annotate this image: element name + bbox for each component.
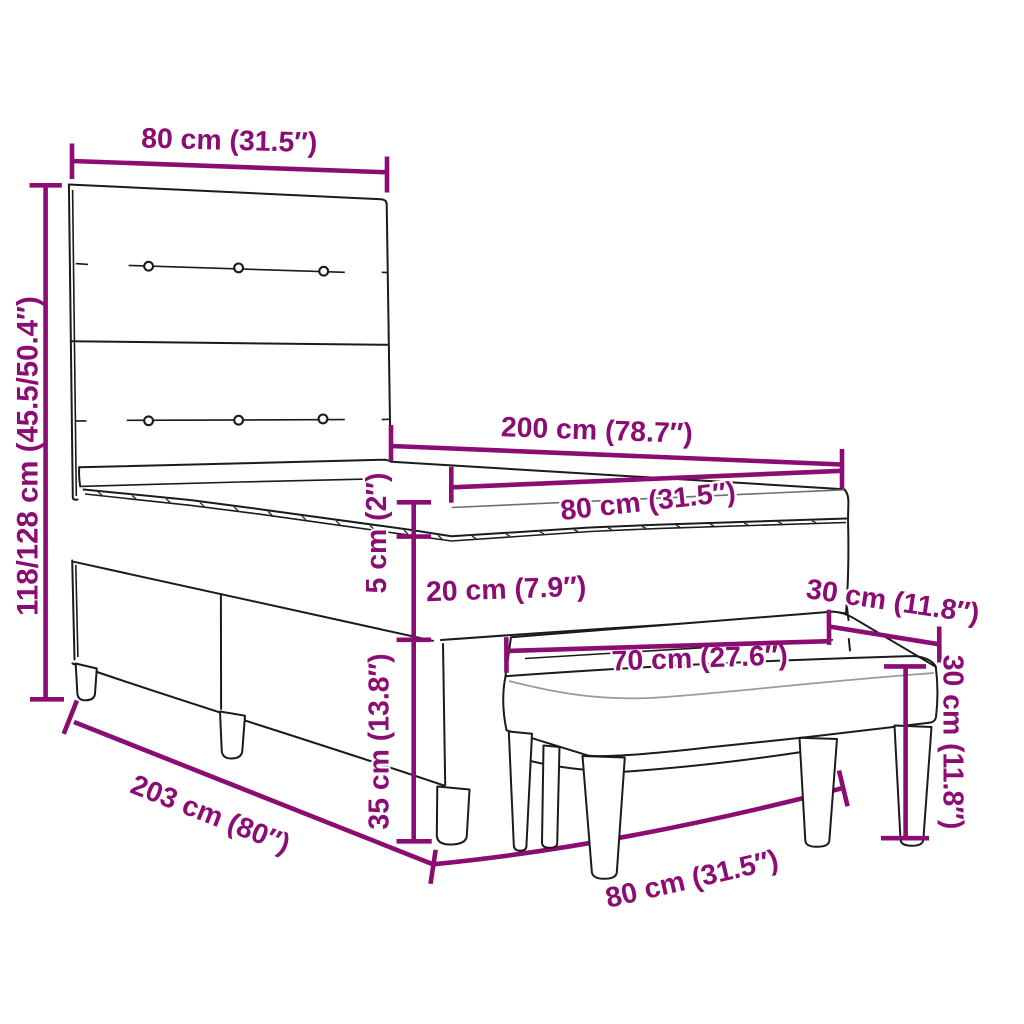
- svg-text:80 cm (31.5″): 80 cm (31.5″): [141, 123, 318, 160]
- svg-text:200 cm (78.7″): 200 cm (78.7″): [500, 411, 693, 450]
- svg-text:30 cm (11.8″): 30 cm (11.8″): [937, 655, 969, 830]
- svg-text:35 cm (13.8″): 35 cm (13.8″): [364, 653, 396, 829]
- svg-text:5 cm (2″): 5 cm (2″): [361, 473, 393, 594]
- svg-text:20 cm (7.9″): 20 cm (7.9″): [425, 571, 586, 609]
- svg-text:118/128 cm (45.5/50.4″): 118/128 cm (45.5/50.4″): [12, 296, 45, 616]
